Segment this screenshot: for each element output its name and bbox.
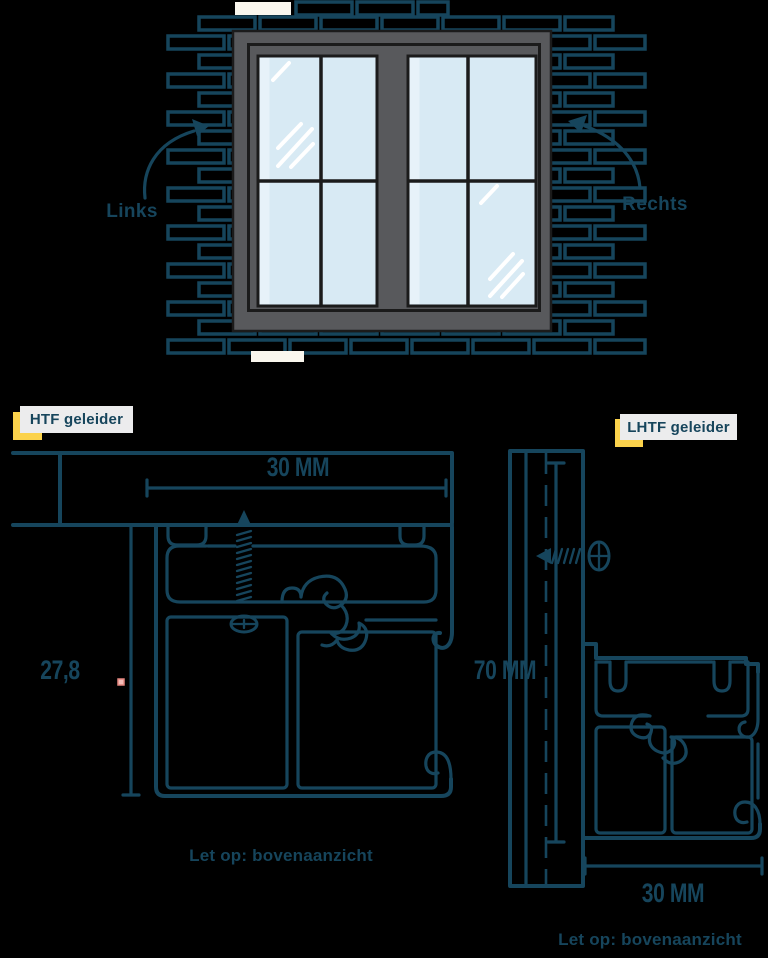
lhtf-height-dimension: 70 MM xyxy=(458,655,552,686)
brick xyxy=(357,2,413,15)
diagram-artwork xyxy=(0,0,768,958)
brick xyxy=(565,17,613,30)
htf-note: Let op: bovenaanzicht xyxy=(171,846,391,866)
brick xyxy=(321,17,377,30)
brick xyxy=(473,340,529,353)
htf-tag-label: HTF geleider xyxy=(20,406,133,433)
brick xyxy=(168,264,224,277)
lhtf-tag-label: LHTF geleider xyxy=(620,414,737,440)
htf-depth-dimension: 27,8 xyxy=(13,655,107,686)
brick xyxy=(199,17,255,30)
lhtf-dimension-70mm xyxy=(548,463,564,842)
brick xyxy=(595,302,645,315)
lhtf-chamber-left xyxy=(596,727,665,833)
brick xyxy=(418,2,448,15)
brick xyxy=(296,2,352,15)
brick xyxy=(565,93,613,106)
rechts-label: Rechts xyxy=(613,194,697,216)
brick xyxy=(443,17,499,30)
brick xyxy=(168,302,224,315)
pink-marker xyxy=(118,679,124,685)
brick xyxy=(168,340,224,353)
brick xyxy=(595,36,645,49)
brick xyxy=(565,55,613,68)
brick xyxy=(504,17,560,30)
white-brick xyxy=(251,351,304,362)
brick xyxy=(565,169,613,182)
white-brick xyxy=(235,2,291,15)
brick xyxy=(168,226,224,239)
lhtf-chamber-right xyxy=(672,737,752,833)
brick xyxy=(168,74,224,87)
brick xyxy=(595,74,645,87)
diagram-page: Links Rechts HTF geleider LHTF geleider … xyxy=(0,0,768,958)
brick xyxy=(412,340,468,353)
brick xyxy=(595,112,645,125)
htf-dimension-27-8 xyxy=(123,527,139,795)
brick xyxy=(595,150,645,163)
brick xyxy=(595,226,645,239)
links-label: Links xyxy=(100,201,164,223)
brick xyxy=(351,340,407,353)
htf-drawing xyxy=(13,453,452,796)
brick xyxy=(595,264,645,277)
brick xyxy=(168,188,224,201)
brick xyxy=(565,321,613,334)
lhtf-note: Let op: bovenaanzicht xyxy=(540,930,760,950)
window-illustration xyxy=(233,31,551,331)
brick xyxy=(565,245,613,258)
htf-width-dimension: 30 MM xyxy=(251,452,345,483)
brick xyxy=(260,17,316,30)
htf-chamber-right xyxy=(298,632,436,788)
brick xyxy=(565,283,613,296)
brick xyxy=(595,340,645,353)
brick xyxy=(565,207,613,220)
lhtf-guide-profile xyxy=(583,644,760,838)
lhtf-width-dimension: 30 MM xyxy=(626,878,720,909)
htf-guide-profile xyxy=(156,527,451,796)
htf-chamber-left xyxy=(167,617,287,788)
brick xyxy=(382,17,438,30)
lhtf-dimension-30mm xyxy=(585,858,762,874)
brick xyxy=(534,340,590,353)
links-arrow-icon xyxy=(145,119,209,198)
screw-icon xyxy=(231,510,257,632)
brick xyxy=(168,150,224,163)
screw-threads xyxy=(237,531,251,601)
brick xyxy=(168,36,224,49)
